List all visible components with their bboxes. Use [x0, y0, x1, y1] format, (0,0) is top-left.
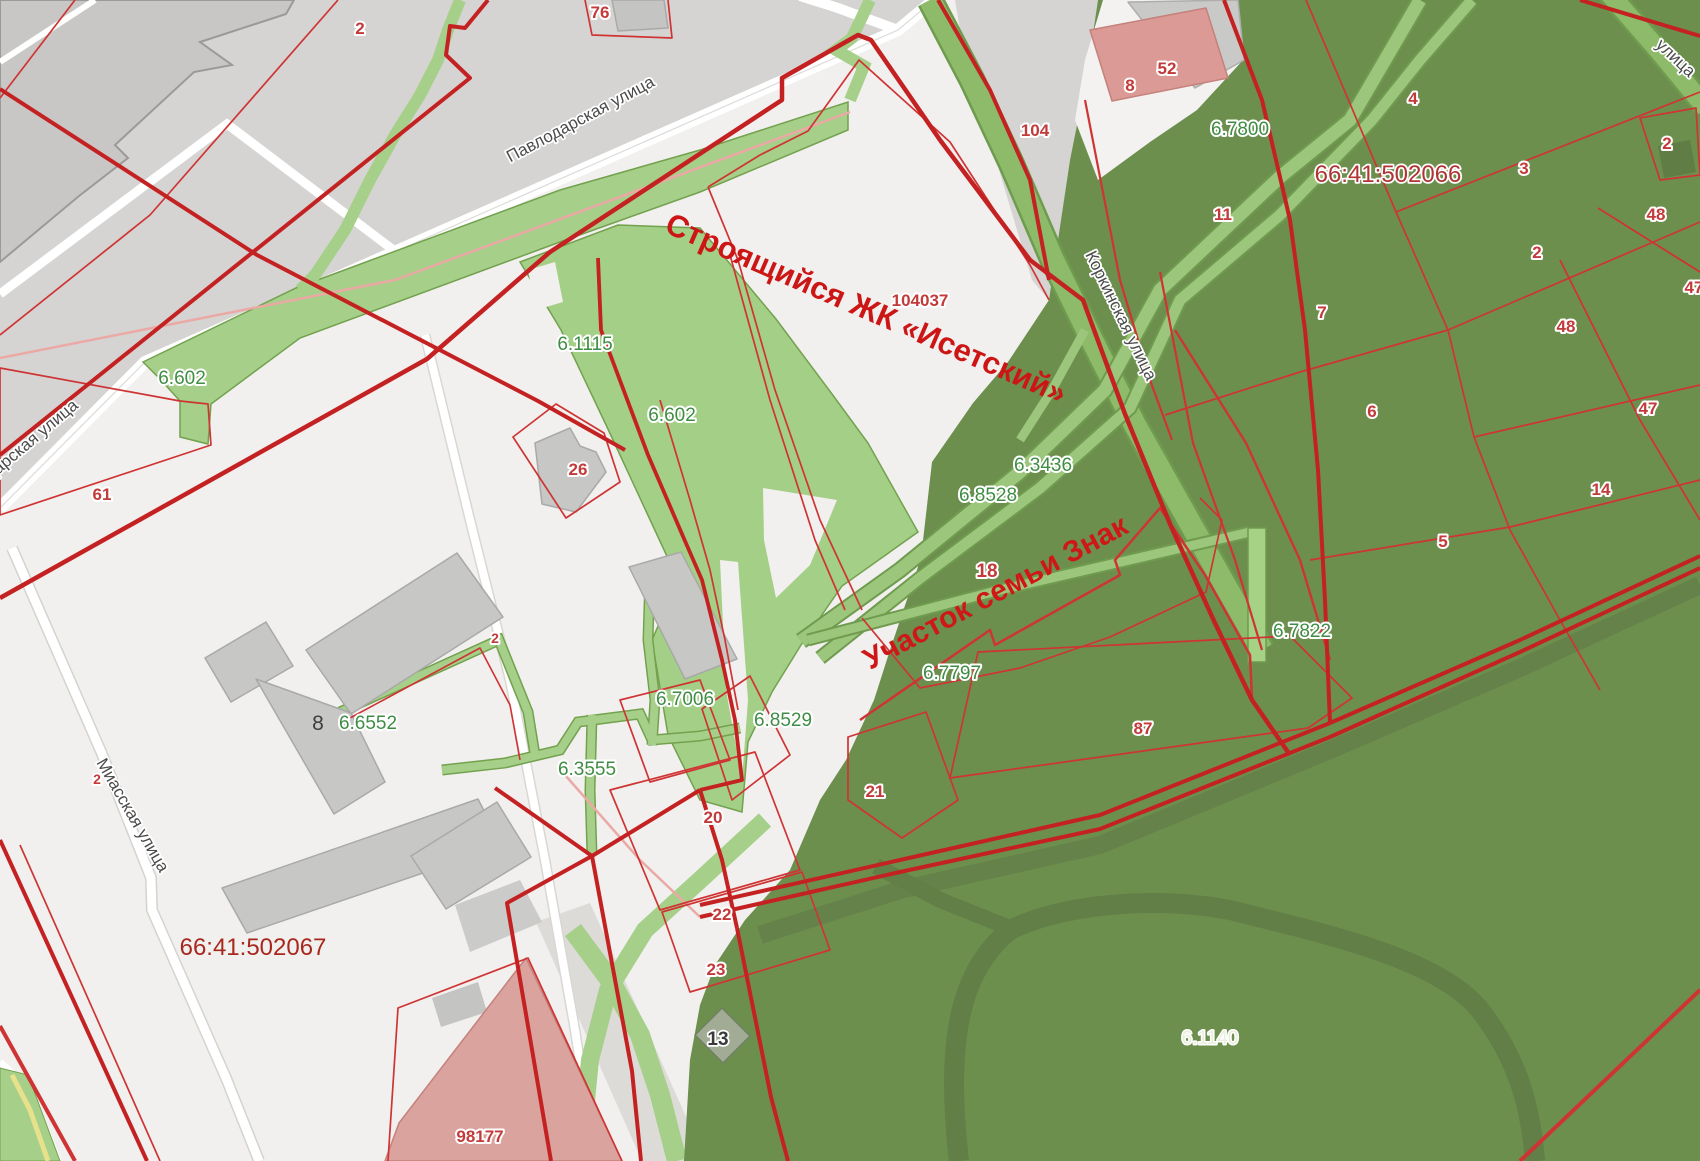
svg-text:3: 3 [1519, 159, 1528, 178]
svg-text:6: 6 [1367, 402, 1376, 421]
svg-text:98177: 98177 [456, 1127, 503, 1146]
svg-text:87: 87 [1134, 719, 1153, 738]
svg-text:20: 20 [704, 808, 723, 827]
svg-text:8: 8 [1125, 76, 1134, 95]
svg-text:2: 2 [1532, 243, 1541, 262]
svg-text:6.8529: 6.8529 [754, 710, 812, 731]
svg-text:104: 104 [1021, 121, 1050, 140]
svg-text:47: 47 [1685, 278, 1700, 297]
svg-text:6.602: 6.602 [158, 368, 206, 389]
svg-text:66:41:502066: 66:41:502066 [1315, 161, 1462, 188]
svg-text:21: 21 [866, 782, 885, 801]
svg-text:5: 5 [1438, 532, 1447, 551]
svg-text:48: 48 [1557, 317, 1576, 336]
svg-text:8: 8 [312, 712, 324, 735]
svg-text:6.7822: 6.7822 [1273, 621, 1331, 642]
svg-text:4: 4 [1408, 89, 1418, 108]
svg-text:6.6552: 6.6552 [339, 713, 397, 734]
svg-text:66:41:502067: 66:41:502067 [180, 934, 327, 961]
svg-text:2: 2 [355, 19, 364, 38]
svg-text:6.1140: 6.1140 [1182, 1028, 1239, 1049]
svg-text:2: 2 [491, 630, 499, 646]
svg-text:18: 18 [976, 561, 997, 582]
svg-text:14: 14 [1592, 480, 1611, 499]
svg-text:61: 61 [93, 485, 112, 504]
svg-text:47: 47 [1639, 399, 1658, 418]
svg-text:104037: 104037 [892, 291, 949, 310]
svg-text:26: 26 [569, 460, 588, 479]
svg-text:11: 11 [1214, 205, 1232, 224]
svg-text:6.3436: 6.3436 [1014, 455, 1072, 476]
svg-text:2: 2 [1662, 134, 1671, 153]
svg-text:6.602: 6.602 [648, 405, 696, 426]
svg-text:52: 52 [1158, 59, 1177, 78]
svg-text:6.1115: 6.1115 [557, 334, 612, 355]
svg-text:13: 13 [707, 1029, 728, 1050]
svg-text:76: 76 [591, 3, 610, 22]
svg-text:6.8528: 6.8528 [959, 485, 1017, 506]
svg-text:23: 23 [707, 960, 726, 979]
svg-text:6.7800: 6.7800 [1211, 119, 1269, 140]
svg-text:6.7006: 6.7006 [656, 689, 714, 710]
svg-text:22: 22 [713, 905, 732, 924]
svg-text:6.7797: 6.7797 [923, 663, 981, 684]
svg-text:48: 48 [1647, 205, 1666, 224]
svg-text:2: 2 [93, 771, 101, 787]
svg-text:7: 7 [1317, 303, 1326, 322]
svg-text:6.3555: 6.3555 [558, 759, 616, 780]
